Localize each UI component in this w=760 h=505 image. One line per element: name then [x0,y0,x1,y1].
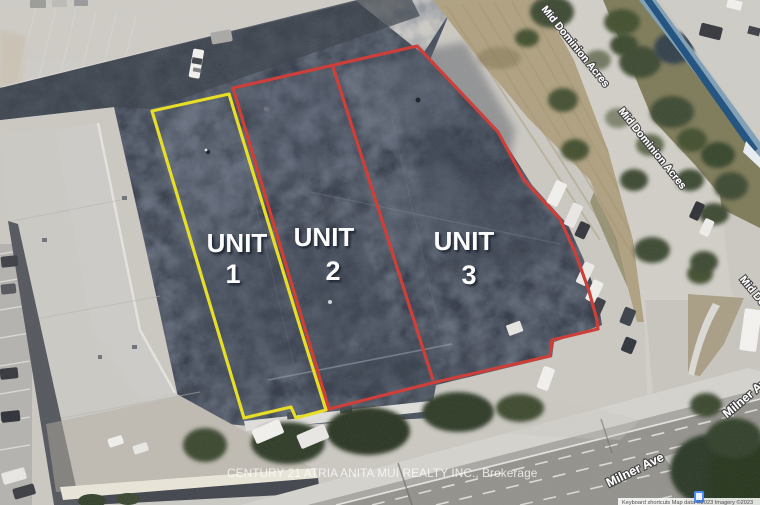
svg-text:Keyboard shortcuts Map data ©: Keyboard shortcuts Map data ©2023 Imager… [622,499,753,505]
